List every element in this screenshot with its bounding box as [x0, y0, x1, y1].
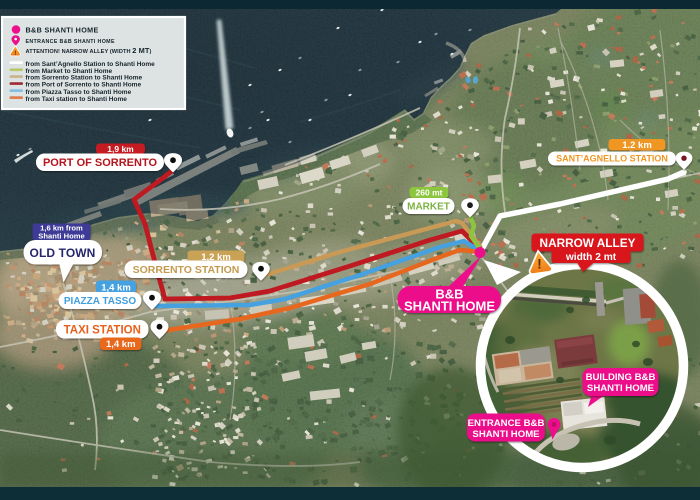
svg-text:ENTRANCE B&B: ENTRANCE B&B [468, 418, 545, 429]
svg-text:1,9 km: 1,9 km [107, 144, 134, 154]
svg-text:from Port of Sorrento to Shant: from Port of Sorrento to Shanti Home [26, 82, 142, 89]
svg-text:from Piazza Tasso to Shanti Ho: from Piazza Tasso to Shanti Home [26, 89, 132, 96]
svg-text:SORRENTO STATION: SORRENTO STATION [133, 264, 240, 276]
svg-text:SHANTI HOME: SHANTI HOME [587, 383, 655, 394]
svg-text:1,4 km: 1,4 km [106, 339, 136, 350]
svg-text:PIAZZA TASSO: PIAZZA TASSO [64, 296, 136, 307]
svg-text:from Sorrento Station to Shant: from Sorrento Station to Shanti Home [26, 75, 143, 82]
svg-text:260 mt: 260 mt [416, 188, 443, 198]
svg-text:!: ! [537, 256, 542, 272]
svg-text:BUILDING B&B: BUILDING B&B [586, 372, 656, 383]
svg-text:width 2 mt: width 2 mt [565, 252, 617, 263]
svg-text:OLD TOWN: OLD TOWN [30, 246, 96, 260]
svg-text:ENTRANCE B&B SHANTI HOME: ENTRANCE B&B SHANTI HOME [26, 39, 115, 45]
svg-text:from Sant’Agnello Station to S: from Sant’Agnello Station to Shanti Home [26, 61, 156, 68]
svg-text:TAXI STATION: TAXI STATION [64, 324, 141, 336]
svg-text:B&B SHANTI HOME: B&B SHANTI HOME [26, 26, 99, 35]
svg-text:1,4 km: 1,4 km [101, 282, 131, 293]
svg-text:SHANTI HOME: SHANTI HOME [404, 299, 495, 314]
svg-text:PORT OF SORRENTO: PORT OF SORRENTO [43, 157, 158, 169]
svg-text:from Taxi station to Shanti Ho: from Taxi station to Shanti Home [26, 96, 128, 103]
svg-text:1.2 km: 1.2 km [622, 140, 652, 151]
svg-text:NARROW ALLEY: NARROW ALLEY [540, 236, 636, 250]
svg-text:SHANTI HOME: SHANTI HOME [472, 429, 540, 440]
svg-text:SANT’AGNELLO STATION: SANT’AGNELLO STATION [556, 154, 668, 164]
svg-text:!: ! [14, 50, 16, 57]
svg-text:MARKET: MARKET [407, 202, 450, 213]
svg-text:Shanti Home: Shanti Home [38, 232, 84, 241]
